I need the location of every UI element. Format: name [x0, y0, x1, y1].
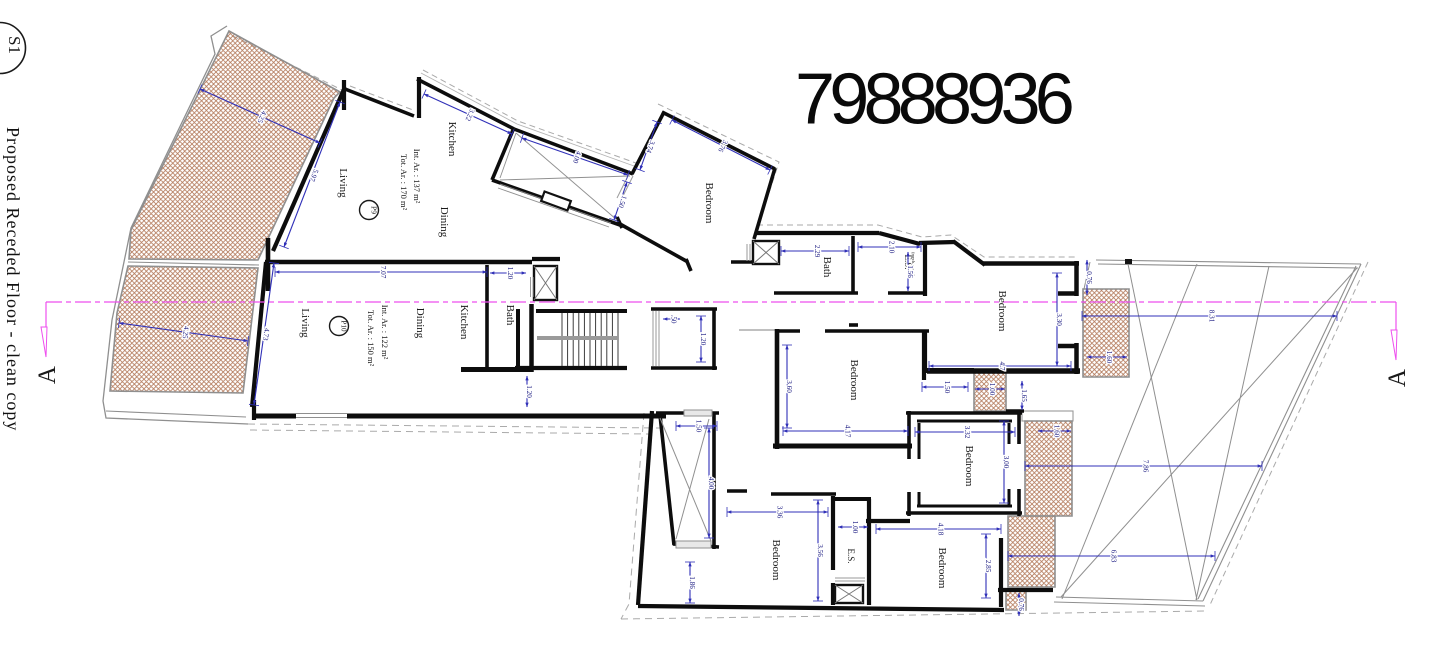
- svg-text:Bath: Bath: [504, 305, 516, 326]
- svg-text:Kitchen: Kitchen: [458, 305, 470, 340]
- svg-text:P9: P9: [370, 206, 379, 214]
- svg-text:Kitchen: Kitchen: [446, 122, 458, 157]
- svg-text:Bedroom: Bedroom: [936, 548, 948, 589]
- svg-text:Bedroom: Bedroom: [963, 446, 975, 487]
- svg-text:Proposed Receded Floor - clean: Proposed Receded Floor - clean copy: [3, 127, 23, 431]
- svg-text:P10: P10: [340, 321, 348, 332]
- svg-text:6.83: 6.83: [1110, 550, 1118, 563]
- svg-text:A: A: [34, 366, 61, 384]
- svg-text:1.86: 1.86: [688, 576, 696, 589]
- svg-text:1.00: 1.00: [988, 383, 996, 396]
- svg-text:S1: S1: [5, 36, 24, 54]
- svg-text:7.86: 7.86: [1142, 460, 1150, 473]
- svg-text:1.60: 1.60: [1053, 425, 1061, 438]
- svg-text:1.50: 1.50: [695, 420, 703, 433]
- svg-text:4.18: 4.18: [937, 523, 945, 536]
- svg-text:8.31: 8.31: [1208, 310, 1216, 323]
- svg-text:A: A: [1384, 369, 1411, 387]
- svg-text:Bedroom: Bedroom: [848, 360, 860, 401]
- svg-text:4.17: 4.17: [844, 425, 852, 438]
- svg-text:1.20: 1.20: [506, 267, 514, 280]
- svg-text:3.36: 3.36: [776, 506, 784, 519]
- svg-text:Living: Living: [337, 168, 349, 198]
- svg-text:Bath: Bath: [821, 257, 833, 278]
- svg-text:79888936: 79888936: [795, 60, 1072, 140]
- svg-text:1.20: 1.20: [699, 333, 707, 346]
- svg-text:.50: .50: [670, 315, 678, 324]
- svg-text:Living: Living: [299, 308, 311, 338]
- svg-text:1.60: 1.60: [1105, 351, 1113, 364]
- svg-text:1.20: 1.20: [525, 385, 533, 398]
- svg-text:E.S.: E.S.: [846, 548, 856, 563]
- svg-text:4.7: 4.7: [998, 362, 1006, 371]
- svg-text:3.30: 3.30: [1055, 313, 1063, 326]
- svg-text:4.00: 4.00: [707, 477, 715, 490]
- svg-text:0.76: 0.76: [1017, 598, 1025, 611]
- svg-text:7.07: 7.07: [379, 266, 387, 279]
- svg-text:Dining: Dining: [438, 207, 450, 238]
- svg-text:3.00: 3.00: [1002, 456, 1010, 469]
- svg-text:Bedroom: Bedroom: [703, 183, 715, 224]
- svg-text:Bedroom: Bedroom: [770, 540, 782, 581]
- svg-text:1.50: 1.50: [943, 381, 951, 394]
- svg-text:1.56: 1.56: [906, 265, 914, 278]
- svg-text:Tot. Ar. : 150 m²: Tot. Ar. : 150 m²: [366, 310, 376, 367]
- svg-text:3.60: 3.60: [785, 380, 793, 393]
- svg-text:2.10: 2.10: [888, 241, 896, 254]
- svg-text:0.76: 0.76: [1085, 271, 1093, 284]
- svg-text:1.00: 1.00: [851, 521, 859, 534]
- svg-text:3.56: 3.56: [816, 544, 824, 557]
- svg-text:1.65: 1.65: [1020, 389, 1028, 402]
- svg-text:Dining: Dining: [414, 308, 426, 339]
- svg-text:Int. Ar. : 137 m²: Int. Ar. : 137 m²: [412, 149, 422, 204]
- svg-text:Int. Ar. : 122 m²: Int. Ar. : 122 m²: [380, 305, 390, 360]
- svg-text:Tot. Ar. : 170 m²: Tot. Ar. : 170 m²: [399, 154, 409, 211]
- svg-text:3.32: 3.32: [963, 426, 971, 439]
- svg-text:Bedroom: Bedroom: [996, 291, 1008, 332]
- svg-text:2.29: 2.29: [813, 245, 821, 258]
- svg-text:2.85: 2.85: [984, 560, 992, 573]
